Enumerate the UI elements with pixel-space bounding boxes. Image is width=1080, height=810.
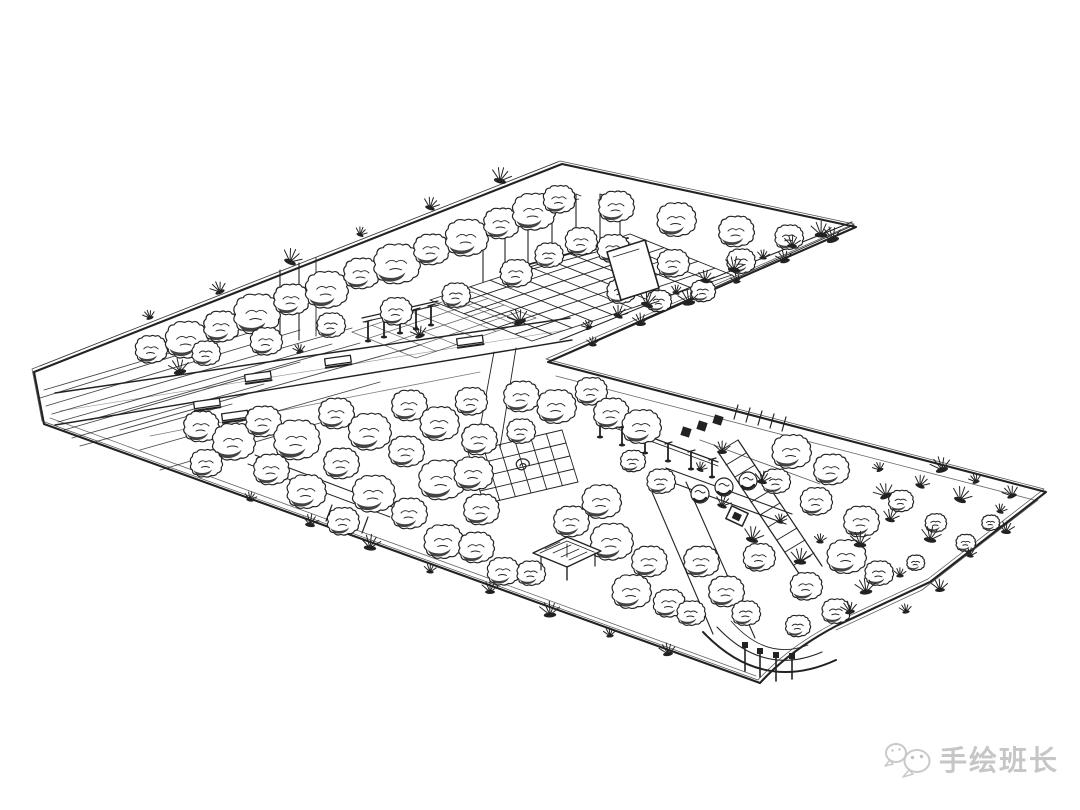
tree (274, 284, 310, 315)
tree (684, 546, 720, 577)
tree (204, 311, 240, 342)
tree (565, 227, 597, 255)
tree (274, 420, 321, 460)
column-base (365, 340, 371, 343)
step-column-cap (757, 648, 763, 654)
paved-feature-core (732, 512, 742, 522)
tree (254, 454, 290, 485)
tree (392, 498, 428, 529)
sketch-line (60, 330, 566, 411)
tree (352, 475, 395, 512)
grass-tuft (714, 441, 730, 454)
grass-tuft (580, 318, 595, 332)
tree (454, 457, 493, 491)
planter-square (680, 426, 691, 437)
tree (622, 410, 661, 444)
tree (380, 297, 412, 325)
tree (800, 487, 832, 515)
tree (677, 601, 706, 626)
grass-tuft (354, 225, 369, 238)
tree (982, 515, 1000, 530)
tree (590, 523, 633, 560)
tree (424, 525, 463, 559)
tree (599, 191, 635, 222)
grass-tuft (871, 460, 886, 474)
grass-tuft (603, 627, 616, 638)
grass-tuft (950, 484, 974, 506)
tree (305, 271, 348, 308)
tree (537, 390, 576, 424)
tree (632, 546, 668, 577)
grass-tuft (757, 249, 770, 260)
tree (462, 424, 498, 455)
grass-tuft (490, 165, 514, 186)
column-base (688, 468, 694, 471)
tree (621, 450, 646, 472)
tree (287, 475, 326, 509)
grass-tuft (994, 502, 1008, 515)
tree (554, 506, 590, 537)
tree (324, 448, 360, 479)
sketch-path (516, 459, 529, 470)
grass-tuft (912, 473, 932, 491)
column-base (665, 460, 671, 463)
step-column-cap (742, 642, 748, 648)
grass-tuft (774, 513, 788, 525)
grass-tuft (208, 279, 228, 297)
tree (790, 572, 822, 600)
bench (245, 371, 272, 384)
tree (455, 387, 487, 415)
tree (956, 534, 976, 551)
sketch-line (576, 194, 581, 196)
grass-tuft (422, 195, 441, 212)
grass-tuft (142, 308, 157, 321)
step-column-cap (773, 652, 779, 658)
grass-tuft (409, 323, 428, 340)
tree (374, 244, 421, 284)
tree (844, 506, 880, 537)
tree (719, 216, 755, 247)
grass-tuft (814, 533, 827, 544)
tree (535, 243, 564, 268)
tree (762, 469, 791, 494)
sketch-line (480, 469, 574, 491)
sketch-line (785, 540, 805, 552)
tree (190, 449, 222, 477)
tree (691, 280, 716, 302)
tree (389, 436, 425, 467)
tree (814, 454, 850, 485)
column-base (428, 324, 434, 327)
grass-tuft (894, 568, 906, 578)
column-base (397, 332, 403, 335)
column-base (597, 436, 603, 439)
tree (414, 234, 450, 265)
tree (647, 469, 676, 494)
sketch-canvas: 手绘班长 手绘班长 (0, 0, 1080, 810)
tree (445, 219, 488, 256)
tree (504, 381, 540, 412)
tree (889, 490, 914, 512)
grass-tuft (280, 245, 305, 268)
planter-square (696, 420, 707, 431)
bench (194, 398, 221, 411)
landscape-sketch: 手绘班长 手绘班长 (0, 0, 1080, 810)
tree (135, 335, 167, 363)
wechat-icon (885, 744, 930, 777)
sketch-line (484, 482, 578, 504)
tree (786, 615, 811, 637)
sketch-line (362, 517, 368, 533)
column-base (381, 336, 387, 339)
sketch-line (726, 453, 746, 465)
tree (500, 259, 532, 287)
tree (317, 313, 346, 338)
planter-square (712, 414, 723, 425)
tree (732, 601, 761, 626)
tree (907, 555, 925, 570)
step-column-cap (789, 653, 795, 659)
tree (657, 249, 689, 277)
tree (612, 575, 651, 609)
tree (442, 283, 471, 308)
tree (348, 413, 391, 450)
tree (772, 435, 811, 469)
tree (327, 507, 359, 535)
sketch-line (777, 528, 797, 540)
tree (543, 185, 575, 213)
tree (822, 599, 851, 624)
watermark: 手绘班长 手绘班长 (885, 744, 1061, 779)
vegetation-layer (135, 165, 1020, 657)
watermark-text: 手绘班长 (939, 744, 1059, 777)
tree (420, 407, 459, 441)
tree (582, 485, 621, 519)
tree (459, 532, 495, 563)
grass-tuft (742, 524, 766, 545)
tree (657, 203, 696, 237)
bench (222, 410, 249, 423)
tree (250, 327, 282, 355)
tree (192, 341, 221, 366)
bench (457, 335, 484, 348)
tree (743, 543, 775, 571)
grass-tuft (899, 603, 913, 615)
tree (507, 419, 536, 444)
column-base (709, 476, 715, 479)
sketch-line (55, 340, 572, 425)
grass-tuft (929, 454, 953, 475)
column-base (619, 444, 625, 447)
tree (464, 494, 500, 525)
tree (487, 557, 519, 585)
